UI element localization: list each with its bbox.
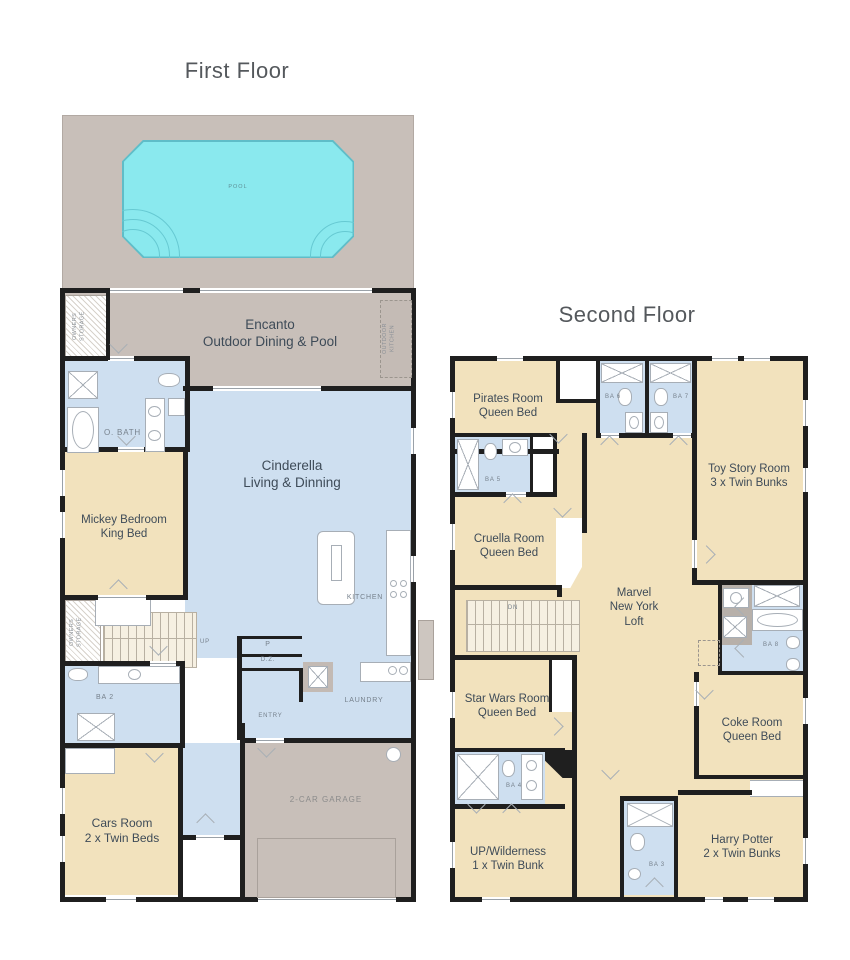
window (744, 356, 770, 361)
toystory-label: Toy Story Room 3 x Twin Bunks (698, 462, 800, 491)
toilet (68, 668, 88, 681)
owners-bath-label: O. BATH (95, 428, 150, 437)
door-opening (98, 595, 146, 600)
mickey-closet (95, 598, 151, 626)
second-floor-title: Second Floor (537, 302, 717, 328)
toilet (502, 760, 515, 777)
pool-label: POOL (122, 184, 354, 190)
window (60, 470, 65, 496)
window (60, 788, 65, 814)
window (450, 842, 455, 868)
sink (509, 442, 521, 453)
starwars-label: Star Wars Room Queen Bed (458, 692, 556, 721)
cruella-label: Cruella Room Queen Bed (462, 532, 556, 561)
sliding-door (213, 386, 321, 391)
window (482, 897, 510, 902)
harry-closet (750, 780, 803, 797)
wall (645, 361, 649, 438)
shower (650, 363, 691, 383)
kitchen-label: KITCHEN (330, 594, 400, 601)
garage-label: 2-CAR GARAGE (278, 795, 374, 804)
sliding-door (110, 288, 183, 293)
shower (77, 713, 115, 741)
wall (620, 796, 678, 801)
shower (68, 371, 98, 399)
dn-label: DN (503, 605, 523, 611)
window (450, 524, 455, 550)
sink (128, 669, 141, 680)
dz-label: D.Z. (237, 657, 299, 663)
owners-storage-label: OWNERS STORAGE (72, 300, 100, 352)
wall (694, 775, 805, 779)
linen-closet (533, 437, 553, 492)
window (450, 692, 455, 718)
ba7-label: BA 7 (668, 394, 694, 400)
window (748, 897, 774, 902)
first-floor-title: First Floor (147, 58, 327, 84)
wall (557, 585, 562, 597)
harry-label: Harry Potter 2 x Twin Bunks (692, 833, 792, 862)
window (803, 400, 808, 426)
wall (237, 636, 242, 740)
sink (526, 780, 537, 791)
shower (627, 803, 673, 827)
cinderella-label: Cinderella Living & Dinning (232, 458, 352, 492)
cars-closet (65, 748, 115, 774)
toilet (630, 833, 645, 851)
bathtub (752, 609, 803, 631)
dryer (399, 666, 408, 675)
wall (455, 433, 555, 437)
utility-shelf (308, 666, 328, 688)
wall (718, 671, 805, 675)
wall (582, 433, 587, 533)
entry-label: ENTRY (243, 713, 298, 719)
wall (455, 585, 562, 590)
pantry-label: P (237, 641, 299, 648)
shower (457, 754, 499, 800)
window (411, 428, 416, 454)
sliding-door (200, 288, 372, 293)
wall (178, 748, 183, 902)
equipment-pad (418, 620, 434, 680)
stairs-rail (103, 638, 197, 639)
marvel-label: Marvel New York Loft (588, 586, 680, 629)
stairs-rail (466, 624, 580, 625)
wall (530, 437, 533, 492)
wall (185, 356, 190, 452)
wall (237, 636, 302, 639)
washer (723, 616, 747, 638)
coke-label: Coke Room Queen Bed (706, 716, 798, 745)
cooktop-burner (400, 591, 407, 598)
cooktop-burner (400, 580, 407, 587)
shower (754, 585, 800, 607)
cooktop-burner (390, 580, 397, 587)
ba8-label: BA 8 (758, 642, 784, 648)
front-porch (185, 840, 240, 897)
mickey-label: Mickey Bedroom King Bed (70, 513, 178, 542)
pirates-closet (560, 361, 596, 399)
shower (457, 439, 479, 490)
wall (237, 668, 302, 671)
wall (678, 790, 752, 795)
sink (148, 406, 161, 417)
laundry-label: LAUNDRY (328, 697, 400, 704)
wall (240, 723, 245, 902)
window (60, 512, 65, 538)
cabinet (168, 398, 185, 416)
window (60, 836, 65, 862)
pirates-label: Pirates Room Queen Bed (458, 392, 558, 421)
island-sink (331, 545, 342, 581)
wall (455, 655, 577, 660)
door-opening (108, 356, 134, 361)
owners-storage2-label: OWNERS STORAGE (69, 606, 97, 658)
floor-plan-canvas: First Floor POOL (0, 0, 850, 960)
window (803, 838, 808, 864)
window (712, 356, 738, 361)
window (497, 356, 523, 361)
cars-label: Cars Room 2 x Twin Beds (72, 816, 172, 846)
sink (628, 868, 641, 880)
toilet (158, 373, 180, 387)
toilet (484, 443, 497, 460)
window (803, 698, 808, 724)
sink (526, 760, 537, 771)
wall (674, 796, 678, 902)
sink (629, 416, 639, 429)
pool: POOL (122, 140, 354, 258)
wall (572, 655, 577, 902)
washer (388, 666, 397, 675)
ba2-label: BA 2 (90, 694, 120, 701)
toilet (654, 388, 668, 406)
wall (180, 661, 185, 748)
window (106, 897, 136, 902)
wall (620, 800, 624, 897)
sink (654, 416, 664, 429)
wall (183, 452, 188, 600)
room-living-kitchen (185, 390, 411, 658)
wall (106, 293, 110, 360)
water-heater (386, 747, 401, 762)
ba6-label: BA 6 (600, 394, 626, 400)
window (450, 392, 455, 418)
lanai-label: Encanto Outdoor Dining & Pool (190, 317, 350, 351)
toilet (786, 636, 800, 649)
shower (601, 363, 643, 383)
window (803, 468, 808, 492)
window (411, 556, 416, 582)
outdoor-kitchen-label: OUTDOOR KITCHEN (382, 306, 410, 372)
door-opening (118, 447, 144, 452)
wilderness-label: UP/Wilderness 1 x Twin Bunk (458, 845, 558, 874)
window (705, 897, 723, 902)
wall (556, 399, 600, 403)
stairs-down (466, 600, 580, 652)
ba5-label: BA 5 (480, 477, 506, 483)
toilet (786, 658, 800, 671)
ba3-label: BA 3 (644, 862, 670, 868)
garage-door-recess (257, 838, 396, 898)
ba4-label: BA 4 (501, 783, 527, 789)
attic-access (698, 640, 720, 666)
up-label: UP (196, 639, 214, 645)
